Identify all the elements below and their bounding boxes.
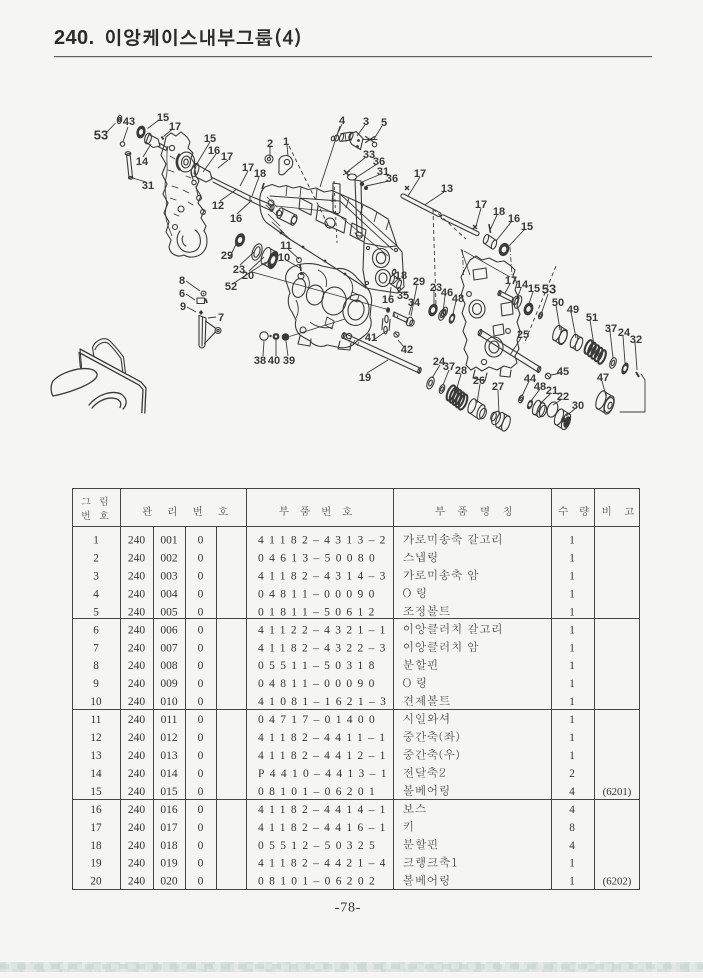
svg-text:16: 16: [90, 804, 102, 816]
svg-text:38: 38: [254, 355, 266, 367]
svg-text:0: 0: [198, 571, 204, 583]
svg-text:1: 1: [569, 696, 575, 708]
svg-text:018: 018: [160, 840, 178, 852]
svg-text:240: 240: [128, 876, 146, 888]
svg-text:32: 32: [630, 334, 642, 346]
svg-text:41081–1621–3: 41081–1621–3: [258, 696, 391, 708]
svg-text:1: 1: [569, 714, 575, 726]
svg-text:41182–4322–3: 41182–4322–3: [258, 642, 391, 654]
svg-text:51: 51: [586, 312, 598, 324]
svg-text:13: 13: [90, 750, 102, 762]
svg-text:240: 240: [128, 858, 146, 870]
svg-text:240: 240: [128, 553, 146, 565]
svg-text:16: 16: [230, 213, 242, 225]
svg-text:240: 240: [128, 768, 146, 780]
svg-text:8: 8: [569, 822, 575, 834]
svg-text:41182–4414–1: 41182–4414–1: [258, 804, 391, 816]
svg-text:41182–4411–1: 41182–4411–1: [258, 732, 390, 744]
svg-text:01811–50612: 01811–50612: [258, 606, 380, 618]
svg-text:2: 2: [93, 553, 99, 565]
svg-text:P4410–4413–1: P4410–4413–1: [258, 768, 392, 780]
svg-text:013: 013: [160, 750, 178, 762]
svg-text:0: 0: [198, 660, 204, 672]
svg-text:12: 12: [212, 200, 224, 212]
svg-text:8: 8: [179, 275, 185, 287]
svg-text:8: 8: [93, 660, 99, 672]
svg-text:(6201): (6201): [603, 786, 632, 798]
svg-text:40: 40: [268, 355, 280, 367]
svg-text:0: 0: [198, 732, 204, 744]
svg-text:08101–06201: 08101–06201: [258, 786, 380, 798]
svg-text:-78-: -78-: [335, 901, 362, 916]
svg-text:18: 18: [90, 840, 102, 852]
svg-text:0: 0: [198, 589, 204, 601]
svg-text:41182–4421–4: 41182–4421–4: [258, 858, 391, 870]
svg-text:014: 014: [160, 768, 178, 780]
svg-text:5: 5: [381, 117, 387, 129]
svg-text:4: 4: [93, 589, 99, 601]
svg-text:0: 0: [198, 840, 204, 852]
svg-text:15: 15: [90, 786, 102, 798]
svg-text:04811–00090: 04811–00090: [258, 589, 380, 601]
svg-text:31: 31: [142, 180, 154, 192]
svg-text:0: 0: [198, 822, 204, 834]
svg-text:1: 1: [283, 136, 289, 148]
svg-text:0: 0: [198, 606, 204, 618]
svg-text:49: 49: [567, 304, 579, 316]
svg-text:240: 240: [128, 642, 146, 654]
svg-text:0: 0: [198, 624, 204, 636]
svg-text:0: 0: [198, 696, 204, 708]
svg-text:08101–06202: 08101–06202: [258, 876, 380, 888]
svg-text:240: 240: [128, 624, 146, 636]
svg-text:17: 17: [242, 162, 254, 174]
svg-text:001: 001: [160, 535, 178, 547]
svg-text:50: 50: [552, 297, 564, 309]
svg-text:04811–00090: 04811–00090: [258, 678, 380, 690]
svg-text:41182–4314–3: 41182–4314–3: [258, 571, 391, 583]
svg-text:5: 5: [93, 606, 99, 618]
svg-text:002: 002: [160, 553, 178, 565]
svg-text:240: 240: [128, 840, 146, 852]
svg-text:19: 19: [90, 858, 102, 870]
svg-text:05511–50318: 05511–50318: [258, 660, 380, 672]
svg-text:0: 0: [198, 642, 204, 654]
svg-text:240: 240: [128, 678, 146, 690]
svg-text:16: 16: [382, 294, 394, 306]
svg-text:45: 45: [557, 366, 569, 378]
svg-text:0: 0: [198, 714, 204, 726]
svg-text:1: 1: [569, 732, 575, 744]
svg-text:12: 12: [90, 732, 101, 744]
svg-text:0: 0: [198, 858, 204, 870]
svg-text:1: 1: [569, 589, 575, 601]
svg-text:1: 1: [569, 876, 575, 888]
svg-text:9: 9: [93, 678, 99, 690]
svg-text:240: 240: [128, 696, 146, 708]
svg-text:0: 0: [198, 553, 204, 565]
svg-text:008: 008: [160, 660, 178, 672]
svg-text:39: 39: [283, 355, 295, 367]
svg-text:015: 015: [160, 786, 178, 798]
svg-text:18: 18: [493, 206, 505, 218]
svg-text:240: 240: [128, 535, 146, 547]
svg-text:1: 1: [93, 535, 99, 547]
svg-text:14: 14: [90, 768, 102, 780]
svg-text:04717–01400: 04717–01400: [258, 714, 380, 726]
svg-text:6: 6: [93, 624, 99, 636]
svg-text:19: 19: [359, 372, 371, 384]
svg-text:240: 240: [128, 571, 146, 583]
svg-text:005: 005: [160, 606, 178, 618]
svg-text:15: 15: [157, 112, 169, 124]
svg-text:05512–50325: 05512–50325: [258, 840, 380, 852]
svg-text:019: 019: [160, 858, 178, 870]
svg-text:14: 14: [136, 156, 149, 168]
svg-text:1: 1: [569, 642, 575, 654]
svg-text:009: 009: [160, 678, 178, 690]
svg-text:41182–4412–1: 41182–4412–1: [258, 750, 391, 762]
svg-text:3: 3: [93, 571, 99, 583]
svg-text:43: 43: [123, 116, 135, 128]
svg-text:0: 0: [198, 804, 204, 816]
svg-text:1: 1: [569, 606, 575, 618]
svg-text:020: 020: [160, 876, 178, 888]
svg-text:240: 240: [128, 804, 146, 816]
svg-text:15: 15: [204, 133, 216, 145]
svg-text:240.: 240.: [54, 27, 95, 49]
svg-text:240: 240: [128, 660, 146, 672]
svg-text:53: 53: [94, 128, 108, 143]
svg-text:52: 52: [225, 281, 237, 293]
svg-text:1: 1: [569, 678, 575, 690]
svg-text:1: 1: [569, 553, 575, 565]
svg-text:29: 29: [221, 250, 233, 262]
svg-text:17: 17: [414, 168, 426, 180]
svg-text:16: 16: [208, 145, 220, 157]
svg-text:017: 017: [160, 822, 178, 834]
svg-text:1: 1: [569, 858, 575, 870]
svg-text:012: 012: [160, 732, 178, 744]
svg-text:7: 7: [93, 642, 99, 654]
svg-text:47: 47: [597, 372, 609, 384]
svg-text:240: 240: [128, 750, 146, 762]
svg-text:0: 0: [198, 750, 204, 762]
svg-text:240: 240: [128, 786, 146, 798]
svg-text:240: 240: [128, 606, 146, 618]
svg-text:10: 10: [90, 696, 102, 708]
svg-text:003: 003: [160, 571, 178, 583]
svg-text:04613–50080: 04613–50080: [258, 553, 380, 565]
svg-text:4: 4: [339, 115, 346, 127]
svg-text:7: 7: [218, 312, 224, 324]
svg-text:240: 240: [128, 714, 146, 726]
svg-text:18: 18: [254, 168, 266, 180]
svg-text:11: 11: [280, 240, 292, 252]
svg-text:1: 1: [569, 535, 575, 547]
svg-text:1: 1: [569, 660, 575, 672]
svg-text:2: 2: [569, 768, 575, 780]
svg-text:4: 4: [569, 840, 575, 852]
svg-text:15: 15: [528, 283, 540, 295]
svg-text:006: 006: [160, 624, 178, 636]
svg-text:17: 17: [90, 822, 102, 834]
svg-text:004: 004: [160, 589, 178, 601]
svg-text:48: 48: [534, 381, 546, 393]
svg-text:240: 240: [128, 732, 146, 744]
svg-text:41122–4321–1: 41122–4321–1: [258, 624, 391, 636]
svg-text:37: 37: [605, 323, 617, 335]
svg-text:010: 010: [160, 696, 178, 708]
svg-text:29: 29: [413, 276, 425, 288]
svg-text:1: 1: [569, 571, 575, 583]
svg-text:016: 016: [160, 804, 178, 816]
svg-text:4: 4: [569, 804, 575, 816]
svg-text:0: 0: [198, 678, 204, 690]
svg-text:4: 4: [569, 786, 575, 798]
svg-text:011: 011: [161, 714, 178, 726]
svg-text:(6202): (6202): [603, 876, 632, 888]
svg-text:36: 36: [386, 173, 398, 185]
svg-text:007: 007: [160, 642, 178, 654]
svg-text:10: 10: [278, 252, 290, 264]
svg-text:17: 17: [169, 121, 181, 133]
svg-text:0: 0: [198, 876, 204, 888]
svg-text:41182–4313–2: 41182–4313–2: [258, 535, 391, 547]
svg-text:20: 20: [90, 876, 102, 888]
svg-text:0: 0: [198, 786, 204, 798]
svg-text:240: 240: [128, 822, 146, 834]
svg-text:6: 6: [179, 288, 185, 300]
svg-text:0: 0: [198, 768, 204, 780]
svg-text:9: 9: [180, 301, 186, 313]
svg-text:240: 240: [128, 589, 146, 601]
svg-text:1: 1: [569, 624, 575, 636]
svg-text:0: 0: [198, 535, 204, 547]
svg-text:11: 11: [91, 714, 102, 726]
svg-text:41182–4416–1: 41182–4416–1: [258, 822, 391, 834]
svg-text:1: 1: [569, 750, 575, 762]
